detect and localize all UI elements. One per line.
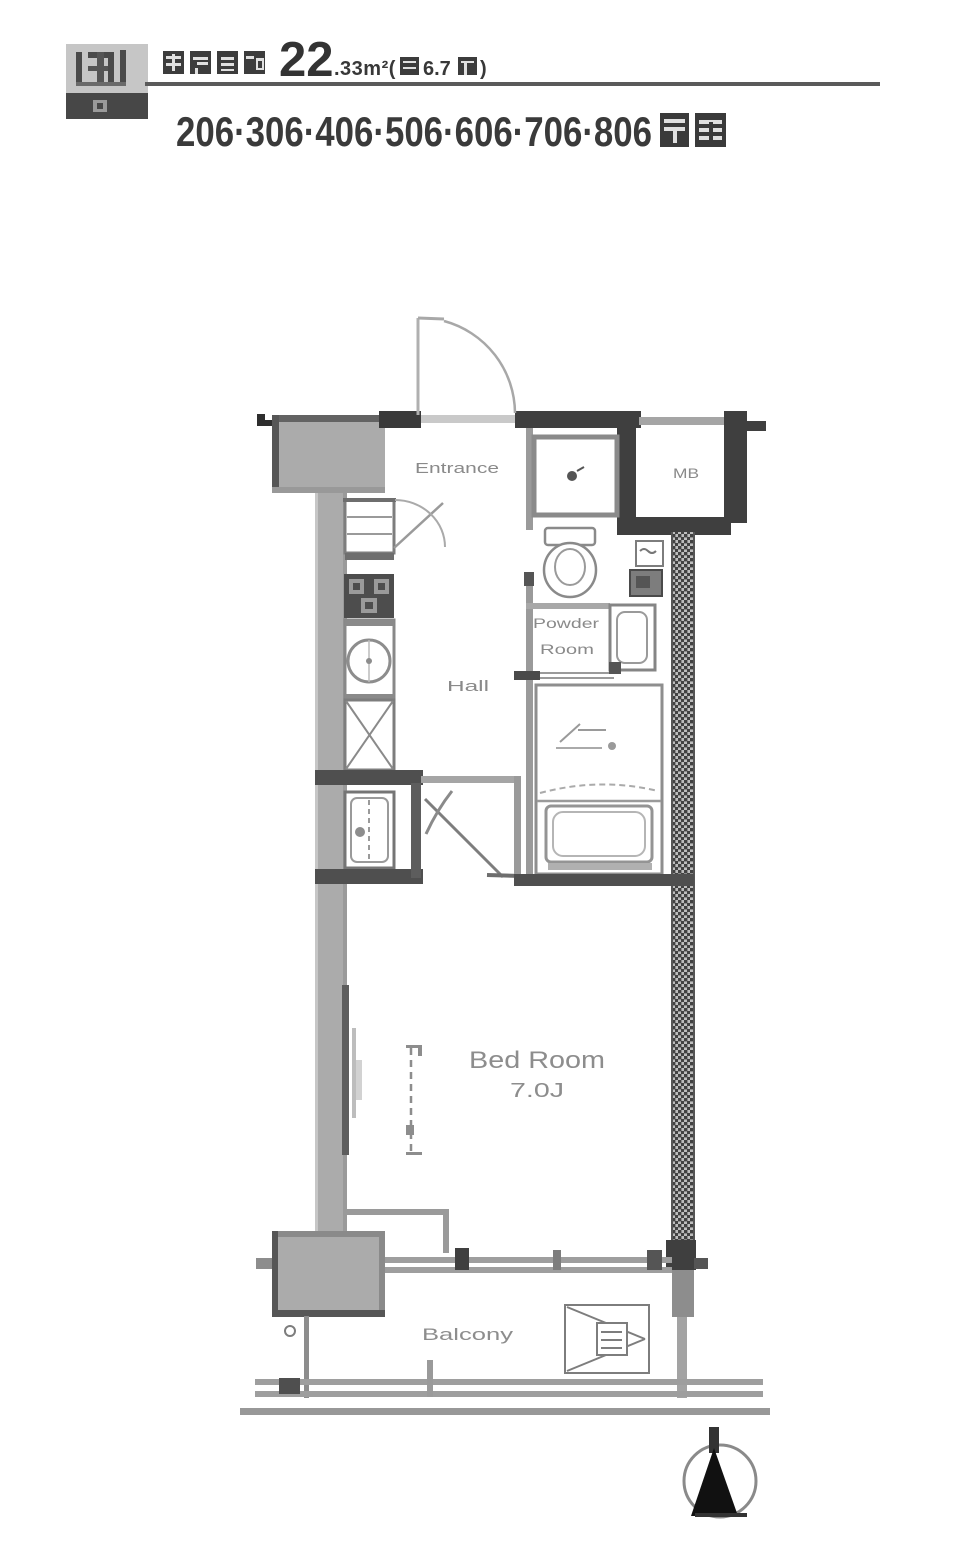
svg-text:): ) <box>480 58 487 80</box>
svg-text:MB: MB <box>673 465 699 481</box>
svg-text:Hall: Hall <box>447 678 489 695</box>
svg-text:.33m²(: .33m²( <box>334 58 396 80</box>
svg-text:Bed Room: Bed Room <box>469 1047 605 1074</box>
svg-text:22: 22 <box>279 33 334 87</box>
svg-text:206·306·406·506·606·706·806: 206·306·406·506·606·706·806 <box>176 108 652 155</box>
svg-text:Powder: Powder <box>533 615 599 631</box>
svg-text:7.0J: 7.0J <box>510 1080 564 1102</box>
svg-text:6.7: 6.7 <box>423 58 451 80</box>
svg-text:Room: Room <box>540 641 594 657</box>
svg-text:Entrance: Entrance <box>415 460 499 477</box>
svg-text:Balcony: Balcony <box>422 1325 514 1344</box>
